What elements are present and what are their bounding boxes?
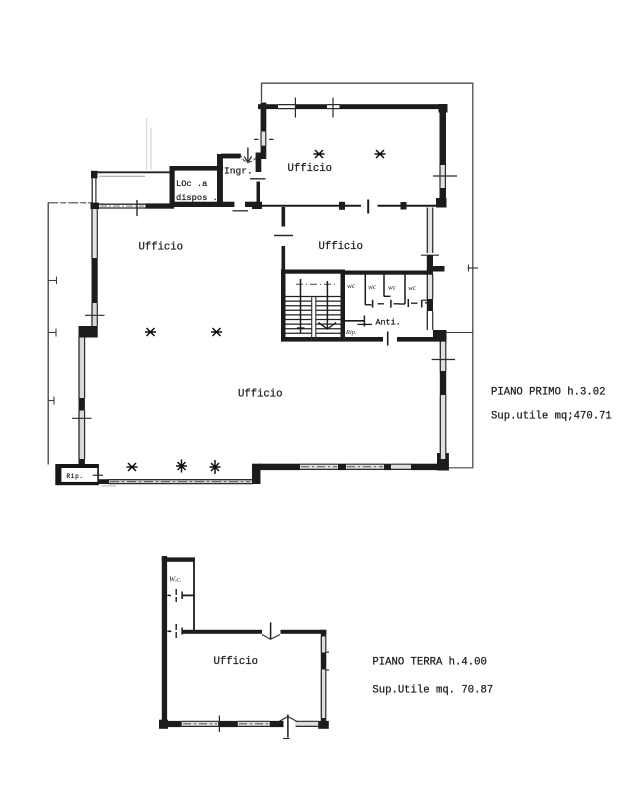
svg-text:Ufficio: Ufficio (319, 241, 364, 253)
svg-text:wc: wc (388, 283, 397, 292)
svg-text:Ufficio: Ufficio (238, 389, 283, 401)
svg-text:PIANO TERRA h.4.00: PIANO TERRA h.4.00 (372, 657, 486, 669)
svg-text:Rip.: Rip. (67, 473, 84, 480)
svg-text:Ufficio: Ufficio (288, 163, 333, 175)
svg-text:wc: wc (368, 283, 377, 292)
svg-text:Sup.Utile mq. 70.87: Sup.Utile mq. 70.87 (372, 685, 493, 697)
svg-text:Sup.utile mq;470.71: Sup.utile mq;470.71 (491, 411, 612, 423)
svg-text:Rip.: Rip. (345, 329, 357, 336)
svg-text:Ufficio: Ufficio (214, 656, 259, 668)
svg-text:wc: wc (408, 284, 417, 293)
svg-text:LOc .a: LOc .a (176, 179, 207, 189)
svg-text:Ufficio: Ufficio (139, 242, 184, 254)
svg-text:Anti.: Anti. (376, 318, 401, 328)
svg-text:W.c.: W.c. (169, 575, 182, 584)
svg-text:wc: wc (347, 282, 356, 291)
svg-text:dispos .: dispos . (176, 193, 218, 203)
svg-text:Ingr.: Ingr. (224, 166, 253, 177)
svg-text:PIANO PRIMO h.3.02: PIANO PRIMO h.3.02 (491, 387, 605, 399)
